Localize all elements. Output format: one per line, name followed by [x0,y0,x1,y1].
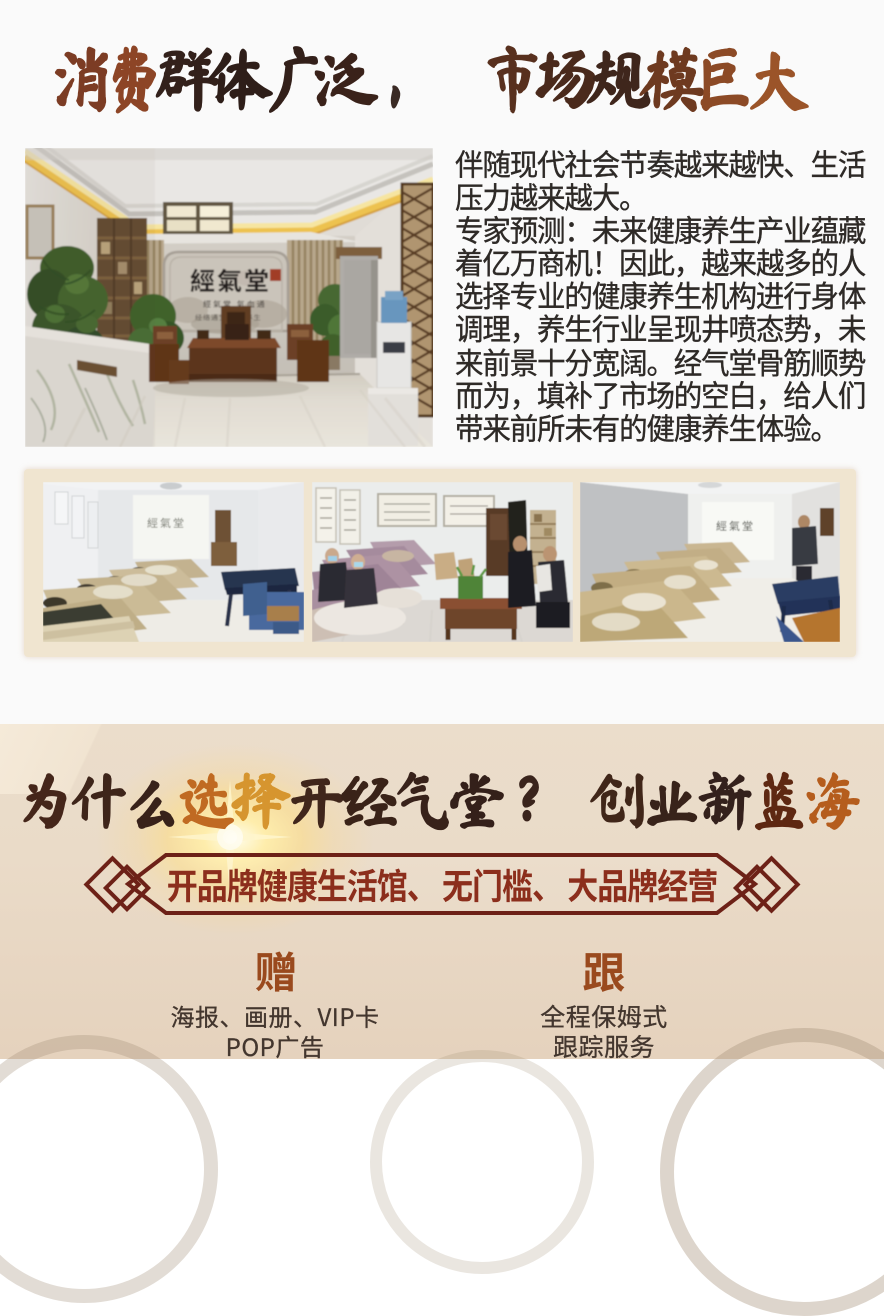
svg-text:經氣堂: 經氣堂 [716,518,755,534]
svg-text:經氣堂: 經氣堂 [147,515,186,531]
